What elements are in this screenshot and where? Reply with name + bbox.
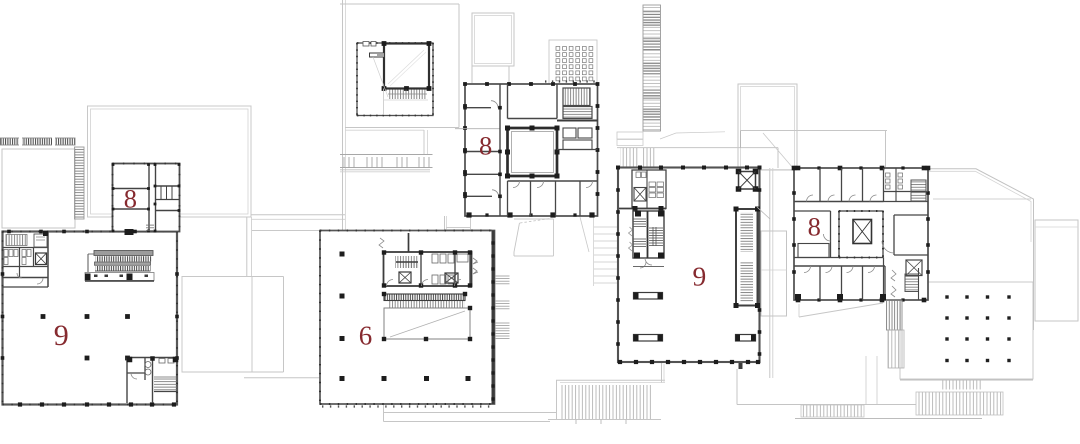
svg-text:6: 6 (359, 320, 373, 350)
svg-text:9: 9 (54, 319, 69, 352)
svg-text:9: 9 (693, 260, 707, 291)
svg-text:8: 8 (479, 130, 492, 160)
svg-text:8: 8 (808, 212, 821, 242)
svg-text:8: 8 (124, 184, 137, 214)
